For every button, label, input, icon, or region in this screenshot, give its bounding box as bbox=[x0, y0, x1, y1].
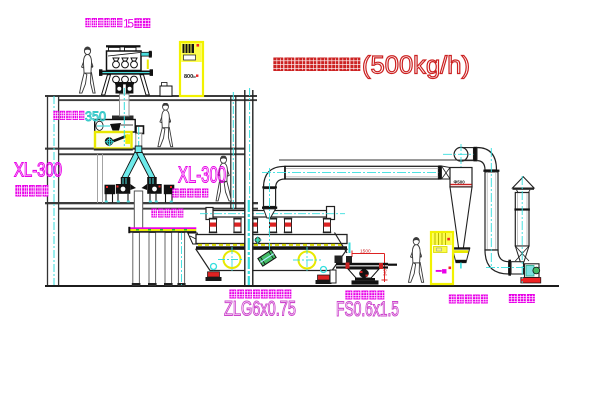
svg-text:XL-300: XL-300 bbox=[178, 162, 226, 188]
svg-text:Φ500: Φ500 bbox=[454, 179, 466, 184]
svg-text:(500kg/h): (500kg/h) bbox=[362, 52, 470, 80]
svg-text:1500: 1500 bbox=[360, 249, 371, 255]
svg-text:1.5: 1.5 bbox=[123, 17, 134, 31]
svg-text:FS0.6x1.5: FS0.6x1.5 bbox=[336, 298, 399, 321]
svg-text:ZLG6x0.75: ZLG6x0.75 bbox=[224, 298, 296, 321]
svg-text:345: 345 bbox=[383, 268, 388, 276]
svg-text:XL-300: XL-300 bbox=[14, 160, 62, 182]
svg-text:━■: ━■ bbox=[435, 266, 447, 276]
svg-text:350: 350 bbox=[85, 109, 106, 124]
